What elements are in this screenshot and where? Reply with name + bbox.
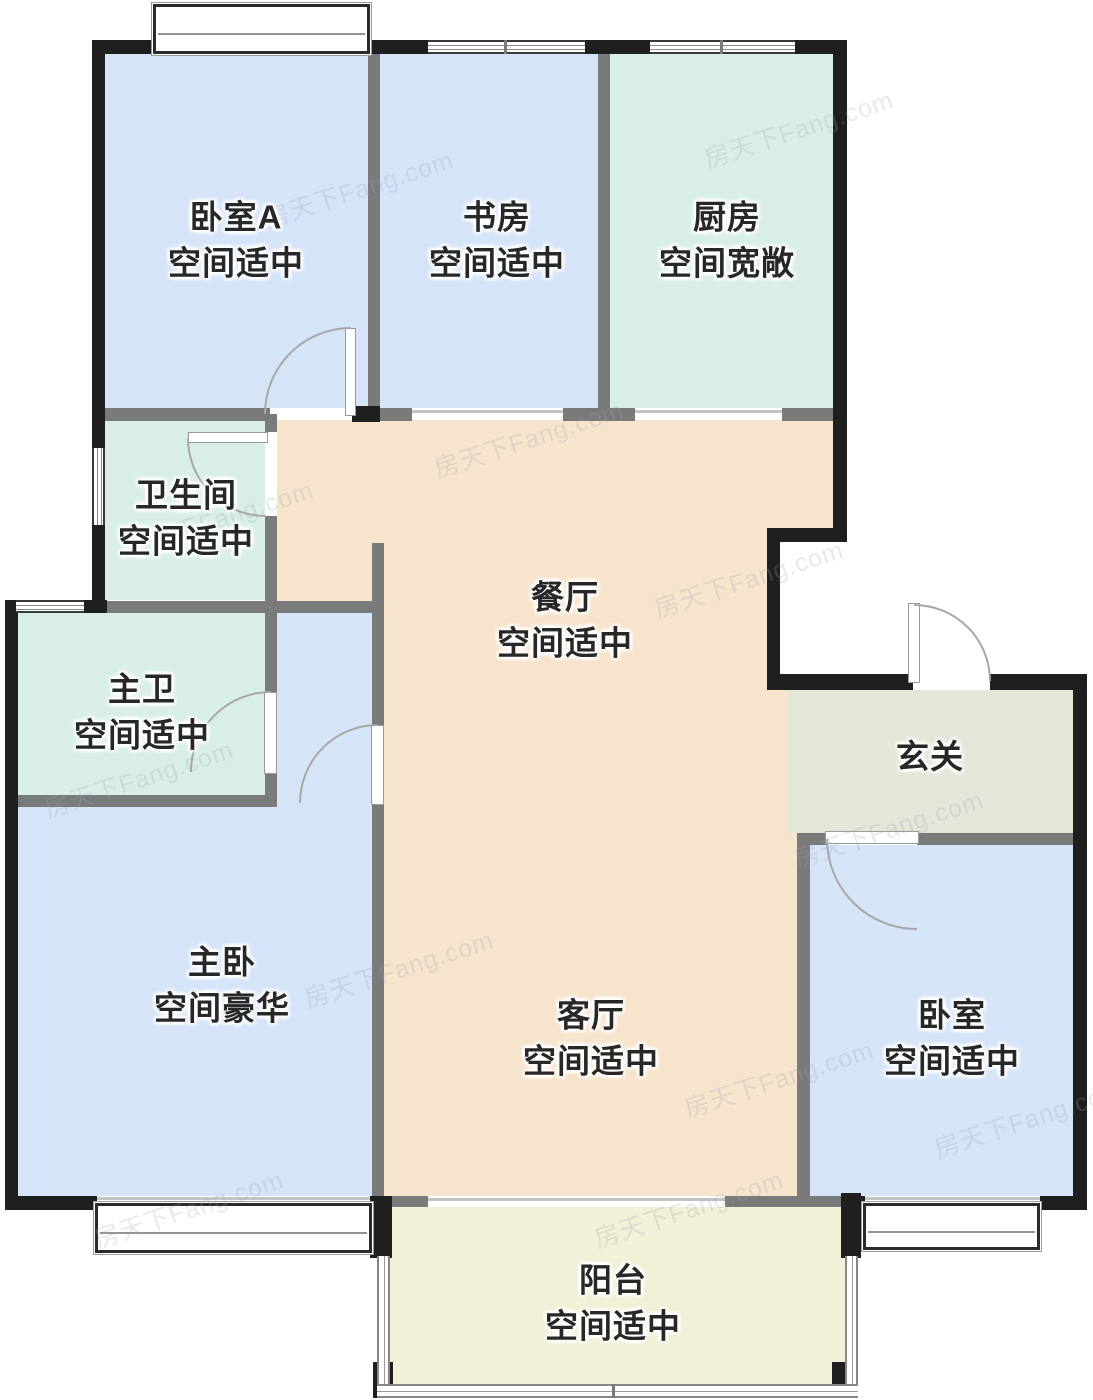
- wall: [265, 516, 277, 613]
- room-name: 卫生间: [118, 472, 254, 518]
- room-label-bedroom-a: 卧室A 空间适中: [168, 194, 304, 285]
- door-leaf-master-bath: [264, 692, 277, 774]
- room-condition: 空间适中: [118, 518, 254, 564]
- bay-window-bedroom-right: [863, 1203, 1040, 1250]
- room-label-kitchen: 厨房 空间宽敞: [659, 194, 795, 285]
- window-master-bath: [16, 600, 84, 613]
- door-leaf-entry: [908, 603, 920, 683]
- wall: [368, 54, 380, 408]
- opening-sill: [412, 410, 563, 413]
- wall-exterior: [585, 40, 650, 54]
- wall: [372, 543, 384, 727]
- room-name: 书房: [429, 194, 565, 240]
- wall-exterior: [5, 600, 18, 1210]
- room-name: 餐厅: [497, 574, 633, 620]
- wall-exterior: [92, 40, 105, 408]
- room-condition: 空间适中: [429, 240, 565, 286]
- wall: [105, 408, 270, 421]
- wall: [797, 845, 810, 1196]
- wall: [598, 54, 610, 408]
- balcony-rail-divider: [612, 1384, 615, 1398]
- wall: [380, 408, 412, 421]
- room-label-dining: 餐厅 空间适中: [497, 574, 633, 665]
- room-label-bathroom: 卫生间 空间适中: [118, 472, 254, 563]
- wall: [265, 613, 277, 693]
- room-name: 客厅: [523, 992, 659, 1038]
- wall-exterior: [767, 674, 913, 690]
- room-condition: 空间豪华: [154, 985, 290, 1031]
- room-condition: 空间适中: [168, 240, 304, 286]
- wall-exterior: [1040, 1196, 1087, 1210]
- window-sill: [865, 1197, 1040, 1200]
- wall-exterior: [92, 408, 105, 450]
- wall-junction: [352, 406, 380, 422]
- opening-sill: [635, 410, 782, 413]
- door-leaf-suite-hallway: [371, 725, 384, 805]
- room-label-balcony: 阳台 空间适中: [545, 1257, 681, 1348]
- room-condition: 空间适中: [497, 620, 633, 666]
- window-bathroom: [92, 448, 105, 525]
- room-name: 卧室A: [168, 194, 304, 240]
- room-name: 玄关: [896, 734, 964, 780]
- wall-exterior: [368, 40, 428, 54]
- room-condition: 空间适中: [74, 712, 210, 758]
- room-condition: 空间适中: [545, 1303, 681, 1349]
- room-label-entryway: 玄关: [896, 734, 964, 780]
- room-name: 主卫: [74, 666, 210, 712]
- wall-exterior: [92, 40, 157, 54]
- door-arc-entry: [914, 605, 990, 681]
- balcony-corner-post: [841, 1193, 861, 1258]
- balcony-corner-post: [370, 1196, 392, 1258]
- bay-window-bedroom-a: [153, 4, 370, 54]
- room-label-master-bath: 主卫 空间适中: [74, 666, 210, 757]
- wall: [392, 1196, 428, 1207]
- room-name: 主卧: [154, 939, 290, 985]
- room-name: 厨房: [659, 194, 795, 240]
- balcony-rail-bottom: [377, 1384, 858, 1398]
- balcony-rail-right: [845, 1256, 858, 1384]
- wall: [107, 601, 384, 613]
- wall: [782, 408, 833, 421]
- room-condition: 空间适中: [523, 1038, 659, 1084]
- room-label-living: 客厅 空间适中: [523, 992, 659, 1083]
- wall: [372, 803, 384, 1196]
- window-divider: [504, 40, 507, 54]
- room-label-study: 书房 空间适中: [429, 194, 565, 285]
- room-fill-dining-low2: [384, 690, 788, 833]
- room-name: 卧室: [884, 992, 1020, 1038]
- room-condition: 空间宽敞: [659, 240, 795, 286]
- wall-exterior: [83, 600, 107, 613]
- window-divider: [720, 40, 723, 54]
- room-fill-suite-hallway: [277, 613, 372, 804]
- room-name: 阳台: [545, 1257, 681, 1303]
- wall-exterior: [5, 1196, 97, 1210]
- balcony-rail-left: [377, 1256, 390, 1384]
- room-condition: 空间适中: [884, 1038, 1020, 1084]
- wall: [265, 414, 277, 432]
- wall: [917, 833, 1073, 845]
- door-leaf-bathroom: [188, 432, 268, 443]
- door-leaf-bedroom-a: [345, 328, 356, 416]
- room-label-master-bedroom: 主卧 空间豪华: [154, 939, 290, 1030]
- floor-plan: 房天下Fang.com 房天下Fang.com 房天下Fang.com 房天下F…: [0, 0, 1093, 1400]
- wall-exterior: [1073, 674, 1087, 1210]
- room-label-bedroom-right: 卧室 空间适中: [884, 992, 1020, 1083]
